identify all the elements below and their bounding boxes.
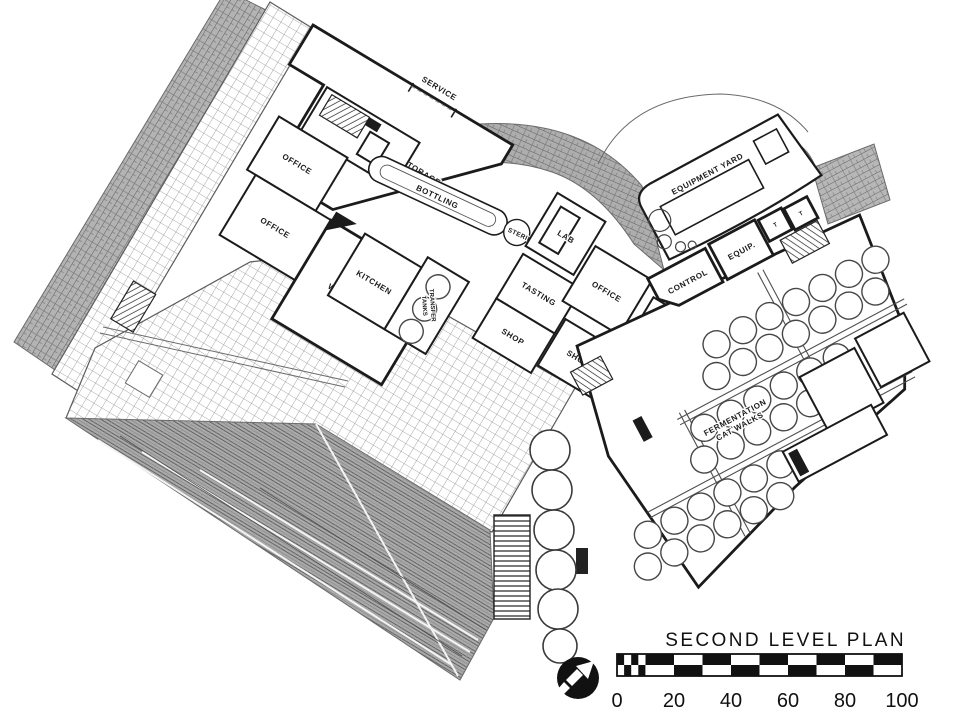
scale-tick-20: 20 (663, 690, 685, 712)
scale-tick-100: 100 (885, 690, 918, 712)
scale-tick-0: 0 (611, 690, 622, 712)
plan-title: SECOND LEVEL PLAN (665, 630, 906, 651)
floor-plan-drawing: SERVICE CASE STORAGE OFFICE OFFICE WINE … (0, 0, 957, 718)
dark-equipment-block (576, 548, 588, 574)
title-block: SECOND LEVEL PLAN (557, 630, 919, 712)
scale-tick-60: 60 (777, 690, 799, 712)
scale-tick-40: 40 (720, 690, 742, 712)
north-arrow-icon (557, 657, 599, 699)
scale-bar: 0 20 40 60 80 100 (611, 654, 918, 712)
roof-block-northeast (812, 144, 890, 224)
second-level-plan-sheet: SERVICE CASE STORAGE OFFICE OFFICE WINE … (0, 0, 957, 718)
roof-louver-strip (494, 515, 530, 619)
large-storage-tanks (530, 430, 578, 663)
scale-tick-80: 80 (834, 690, 856, 712)
